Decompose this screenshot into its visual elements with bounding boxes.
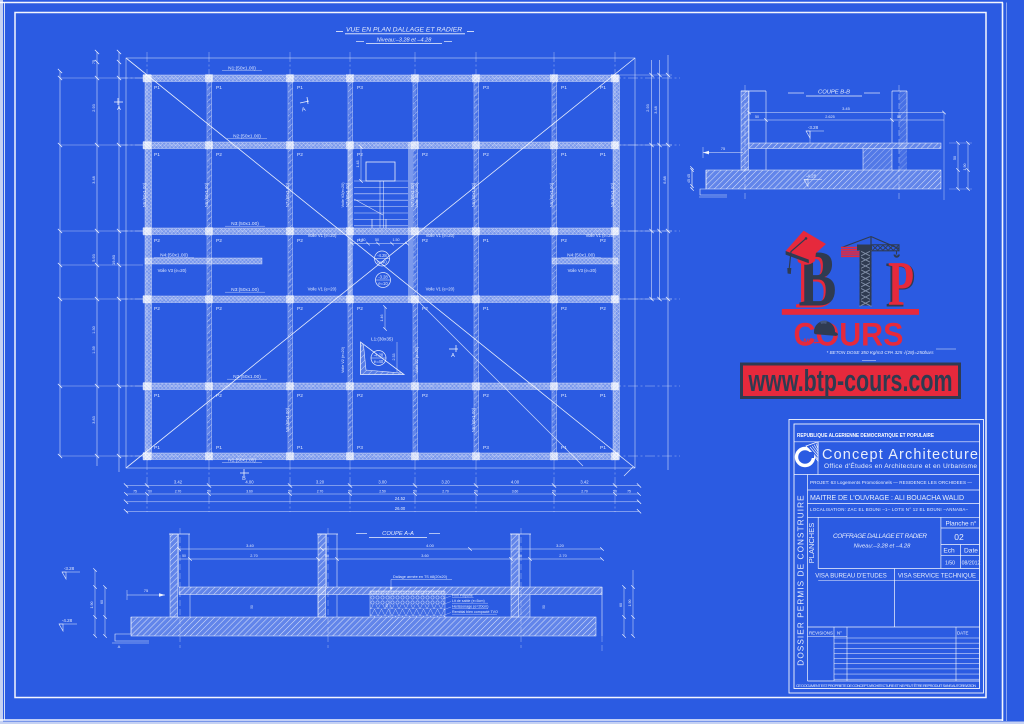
svg-text:Date: Date <box>964 548 978 555</box>
svg-text:1/50: 1/50 <box>945 561 955 567</box>
svg-text:P2: P2 <box>561 238 567 244</box>
svg-text:P1: P1 <box>600 152 606 158</box>
svg-text:P1: P1 <box>483 306 489 312</box>
svg-text:e=10: e=10 <box>378 281 388 286</box>
svg-text:P2: P2 <box>297 152 303 158</box>
svg-text:P2: P2 <box>297 393 303 399</box>
svg-text:P2: P2 <box>357 393 363 399</box>
svg-text:45: 45 <box>687 174 691 178</box>
svg-text:4.00: 4.00 <box>511 480 520 485</box>
svg-text:P2: P2 <box>422 393 428 399</box>
svg-text:50: 50 <box>413 489 417 493</box>
svg-text:N°: N° <box>837 631 842 636</box>
svg-text:1.50: 1.50 <box>393 238 400 242</box>
svg-text:2.70: 2.70 <box>250 554 257 558</box>
svg-text:P: P <box>888 249 914 319</box>
svg-text:Niveau:–3.28 et –4.28: Niveau:–3.28 et –4.28 <box>377 38 433 44</box>
svg-text:50: 50 <box>325 554 329 558</box>
svg-text:3.42: 3.42 <box>580 480 589 485</box>
svg-text:VISA SERVICE TECHNIQUE: VISA SERVICE TECHNIQUE <box>898 574 976 580</box>
svg-text:3.60: 3.60 <box>246 489 253 493</box>
svg-text:3.20: 3.20 <box>556 543 565 548</box>
svg-text:3.40: 3.40 <box>246 543 255 548</box>
svg-text:P1: P1 <box>600 445 606 451</box>
svg-text:P2: P2 <box>600 238 606 244</box>
svg-text:P2: P2 <box>357 306 363 312</box>
svg-text:P2: P2 <box>297 306 303 312</box>
svg-text:75: 75 <box>92 60 96 64</box>
svg-text:e=40: e=40 <box>377 260 387 265</box>
svg-text:P2: P2 <box>600 306 606 312</box>
svg-text:NO:: NO: <box>803 337 817 346</box>
svg-text:30: 30 <box>385 604 389 608</box>
svg-text:1.46: 1.46 <box>380 315 384 322</box>
svg-text:P2: P2 <box>422 238 428 244</box>
svg-text:Ech: Ech <box>943 548 955 555</box>
svg-text:P3: P3 <box>357 85 363 91</box>
svg-text:50: 50 <box>148 489 152 493</box>
svg-text:-4.28: -4.28 <box>62 618 73 623</box>
svg-text:Voile V1 (e=20): Voile V1 (e=20) <box>308 287 337 292</box>
svg-text:60: 60 <box>619 603 623 607</box>
svg-text:3.48: 3.48 <box>654 106 658 113</box>
svg-text:Voile V2(e=20): Voile V2(e=20) <box>415 182 419 208</box>
svg-text:75: 75 <box>133 489 137 493</box>
svg-text:Office d'Études en Architectur: Office d'Études en Architecture et en Ur… <box>824 461 977 470</box>
svg-text:P1: P1 <box>561 152 567 158</box>
svg-text:2.70: 2.70 <box>175 489 182 493</box>
svg-text:-3.28: -3.28 <box>378 275 388 280</box>
svg-text:P2: P2 <box>216 152 222 158</box>
svg-text:50: 50 <box>613 489 617 493</box>
svg-text:P3: P3 <box>357 445 363 451</box>
svg-text:Dallage armée en TS #8(20x20): Dallage armée en TS #8(20x20) <box>393 575 448 579</box>
svg-text:COUPE A-A: COUPE A-A <box>382 531 414 537</box>
svg-text:P2: P2 <box>216 306 222 312</box>
svg-text:3.83: 3.83 <box>92 416 96 423</box>
svg-text:3.60: 3.60 <box>421 554 428 558</box>
svg-text:4.00: 4.00 <box>245 480 254 485</box>
svg-text:50: 50 <box>288 489 292 493</box>
svg-text:L1:(30x35): L1:(30x35) <box>371 337 393 342</box>
svg-text:P1: P1 <box>297 85 303 91</box>
svg-text:24.52: 24.52 <box>395 496 406 501</box>
svg-text:www.btp-cours.com: www.btp-cours.com <box>748 363 953 398</box>
svg-text:P2: P2 <box>154 238 160 244</box>
svg-text:P2: P2 <box>216 393 222 399</box>
svg-text:P1: P1 <box>297 445 303 451</box>
svg-text:1.48: 1.48 <box>356 161 360 168</box>
svg-text:P1: P1 <box>483 238 489 244</box>
svg-text:2.625: 2.625 <box>825 115 835 119</box>
svg-text:08/2012: 08/2012 <box>962 561 981 567</box>
svg-text:45: 45 <box>687 179 691 183</box>
svg-text:3.00: 3.00 <box>378 480 387 485</box>
svg-text:REVISIONS: REVISIONS <box>809 631 833 636</box>
svg-text:Herissonage (e=20cm): Herissonage (e=20cm) <box>452 605 488 609</box>
svg-text:P1: P1 <box>561 393 567 399</box>
svg-text:e=40: e=40 <box>374 359 384 364</box>
svg-text:3.42: 3.42 <box>174 480 183 485</box>
svg-text:26.00: 26.00 <box>395 506 406 511</box>
svg-text:COFFRAGE DALLAGE ET RADIER: COFFRAGE DALLAGE ET RADIER <box>833 533 927 540</box>
svg-text:1.90: 1.90 <box>628 600 632 607</box>
svg-text:P2: P2 <box>357 238 363 244</box>
svg-text:1.39: 1.39 <box>92 346 96 353</box>
svg-text:COUPE B-B: COUPE B-B <box>818 90 850 96</box>
svg-text:3.45: 3.45 <box>842 106 851 111</box>
svg-text:2.93: 2.93 <box>92 104 96 111</box>
svg-text:MAITRE DE L'OUVRAGE : ALI: MAITRE DE L'OUVRAGE : ALI BOUACHA WALID <box>810 495 964 502</box>
svg-text:P2: P2 <box>422 306 428 312</box>
svg-text:P2: P2 <box>297 238 303 244</box>
svg-text:50: 50 <box>207 489 211 493</box>
svg-text:-3.28: -3.28 <box>64 566 75 571</box>
svg-text:P2: P2 <box>561 306 567 312</box>
svg-text:PROJET: 63 Logements Promotio: PROJET: 63 Logements Promotionnels — RES… <box>810 480 972 485</box>
svg-text:19.80: 19.80 <box>111 254 116 265</box>
svg-text:50: 50 <box>897 115 901 119</box>
svg-text:N7:(50x1.00): N7:(50x1.00) <box>345 182 350 207</box>
svg-text:P1: P1 <box>600 85 606 91</box>
svg-text:3.20: 3.20 <box>316 480 325 485</box>
svg-text:Niveau:–3.28 et –4.28: Niveau:–3.28 et –4.28 <box>854 544 911 550</box>
svg-text:Film Polyane: Film Polyane <box>452 594 473 598</box>
svg-text:* BETON DOSE 350 Kg/m3 CP: * BETON DOSE 350 Kg/m3 CPA 325 √(28)=250… <box>827 350 935 355</box>
svg-text:75: 75 <box>627 489 631 493</box>
svg-text:50: 50 <box>755 115 759 119</box>
svg-text:Voile V1 (e=20): Voile V1 (e=20) <box>426 233 455 238</box>
svg-text:P2: P2 <box>154 306 160 312</box>
svg-text:2.50: 2.50 <box>379 489 386 493</box>
svg-text:3.60: 3.60 <box>512 489 519 493</box>
svg-text:Voile V2 (e=20): Voile V2 (e=20) <box>415 346 419 373</box>
svg-text:02: 02 <box>954 532 964 542</box>
svg-text:75: 75 <box>144 588 149 593</box>
svg-text:N6:(50x1.00): N6:(50x1.00) <box>204 182 209 207</box>
svg-text:50: 50 <box>182 554 186 558</box>
svg-text:2.70: 2.70 <box>581 489 588 493</box>
svg-text:1.90: 1.90 <box>90 602 94 609</box>
svg-text:DOSSIER PERMIS DE CONSTRUIRE: DOSSIER PERMIS DE CONSTRUIRE <box>797 494 806 665</box>
svg-text:50: 50 <box>348 489 352 493</box>
svg-text:Planche n°: Planche n° <box>946 520 977 528</box>
svg-text:50: 50 <box>250 605 254 609</box>
svg-text:VISA BUREAU D'ETUDES: VISA BUREAU D'ETUDES <box>815 574 887 580</box>
svg-text:REPUBLIQUE ALGERIENNE DEMOCRAT: REPUBLIQUE ALGERIENNE DEMOCRATIQUE ET PO… <box>797 433 934 439</box>
svg-text:P1: P1 <box>216 445 222 451</box>
svg-text:-4.28: -4.28 <box>377 253 387 258</box>
svg-text:3.48: 3.48 <box>92 176 96 183</box>
svg-text:Voile V3 (e=20): Voile V3 (e=20) <box>158 268 187 273</box>
svg-text:N6:(50x1.00): N6:(50x1.00) <box>549 182 554 207</box>
svg-text:P1: P1 <box>154 152 160 158</box>
svg-text:Voile V2(e=20): Voile V2(e=20) <box>341 182 345 208</box>
svg-text:50: 50 <box>474 489 478 493</box>
svg-text:DATE: DATE <box>957 631 968 636</box>
svg-text:5.93: 5.93 <box>92 254 96 261</box>
svg-text:N5:(50x1.00): N5:(50x1.00) <box>142 182 147 207</box>
svg-text:50: 50 <box>518 554 522 558</box>
svg-text:50: 50 <box>552 489 556 493</box>
svg-text:3.20: 3.20 <box>441 480 450 485</box>
svg-text:CE DOCUMENT EST PROPRIETE DE C: CE DOCUMENT EST PROPRIETE DE CONCEPT ARC… <box>796 683 976 688</box>
svg-text:P2: P2 <box>216 238 222 244</box>
svg-text:N5:(50x1.00): N5:(50x1.00) <box>610 182 615 207</box>
svg-text:-3.28: -3.28 <box>808 125 819 130</box>
svg-text:4.00: 4.00 <box>426 543 435 548</box>
svg-text:Lit de sable (e=5cm): Lit de sable (e=5cm) <box>452 599 485 603</box>
svg-text:P1: P1 <box>154 85 160 91</box>
svg-text:1.90: 1.90 <box>963 164 967 171</box>
svg-text:P2: P2 <box>357 152 363 158</box>
svg-text:2.33: 2.33 <box>392 354 396 361</box>
svg-text:P1: P1 <box>154 393 160 399</box>
svg-text:P2: P2 <box>422 152 428 158</box>
svg-text:P3: P3 <box>483 85 489 91</box>
svg-text:N5:(50x1.00): N5:(50x1.00) <box>285 407 290 432</box>
svg-text:Voile V3 (e=20): Voile V3 (e=20) <box>568 268 597 273</box>
svg-text:P1: P1 <box>154 445 160 451</box>
svg-text:N6:(50x1.00): N6:(50x1.00) <box>471 182 476 207</box>
svg-text:6.88: 6.88 <box>663 176 667 183</box>
svg-text:COURS: COURS <box>794 317 904 353</box>
svg-text:Voile V1 (e=20): Voile V1 (e=20) <box>586 233 615 238</box>
svg-text:P1: P1 <box>216 85 222 91</box>
svg-text:60: 60 <box>100 600 104 604</box>
svg-text:-4.28: -4.28 <box>806 174 817 179</box>
svg-text:N7:(50x1.00): N7:(50x1.00) <box>285 182 290 207</box>
svg-text:P2: P2 <box>483 152 489 158</box>
svg-text:Voile V2 (e=20): Voile V2 (e=20) <box>341 346 345 373</box>
svg-text:1.30: 1.30 <box>92 326 96 333</box>
svg-text:2.93: 2.93 <box>646 104 650 111</box>
svg-text:P1: P1 <box>561 85 567 91</box>
svg-text:Concept Architecture: Concept Architecture <box>822 447 978 463</box>
svg-text:P1: P1 <box>600 393 606 399</box>
svg-text:Voile V1 (e=20): Voile V1 (e=20) <box>426 287 455 292</box>
svg-text:2.70: 2.70 <box>559 554 566 558</box>
svg-text:Remblai bien compacté TVO: Remblai bien compacté TVO <box>452 610 498 614</box>
svg-text:P1: P1 <box>561 445 567 451</box>
svg-text:P3: P3 <box>483 445 489 451</box>
svg-text:A: A <box>451 353 455 359</box>
svg-text:VUE EN PLAN DALLAGE ET RA: VUE EN PLAN DALLAGE ET RADIER <box>346 27 462 34</box>
svg-text:50: 50 <box>375 238 379 242</box>
svg-text:PLANCHES: PLANCHES <box>807 523 816 563</box>
svg-text:LOCALISATION: ZAC EL BOUNI –: LOCALISATION: ZAC EL BOUNI –1– LOTS N° 1… <box>810 507 969 512</box>
svg-text:N5:(50x1.00): N5:(50x1.00) <box>471 407 476 432</box>
svg-text:75: 75 <box>721 146 726 151</box>
svg-text:2.70: 2.70 <box>442 489 449 493</box>
svg-text:50: 50 <box>542 605 546 609</box>
svg-text:A: A <box>118 644 121 649</box>
svg-text:50: 50 <box>953 156 957 160</box>
svg-text:2.70: 2.70 <box>317 489 324 493</box>
svg-text:P2: P2 <box>483 393 489 399</box>
svg-text:Voile V1 (e=20): Voile V1 (e=20) <box>308 233 337 238</box>
